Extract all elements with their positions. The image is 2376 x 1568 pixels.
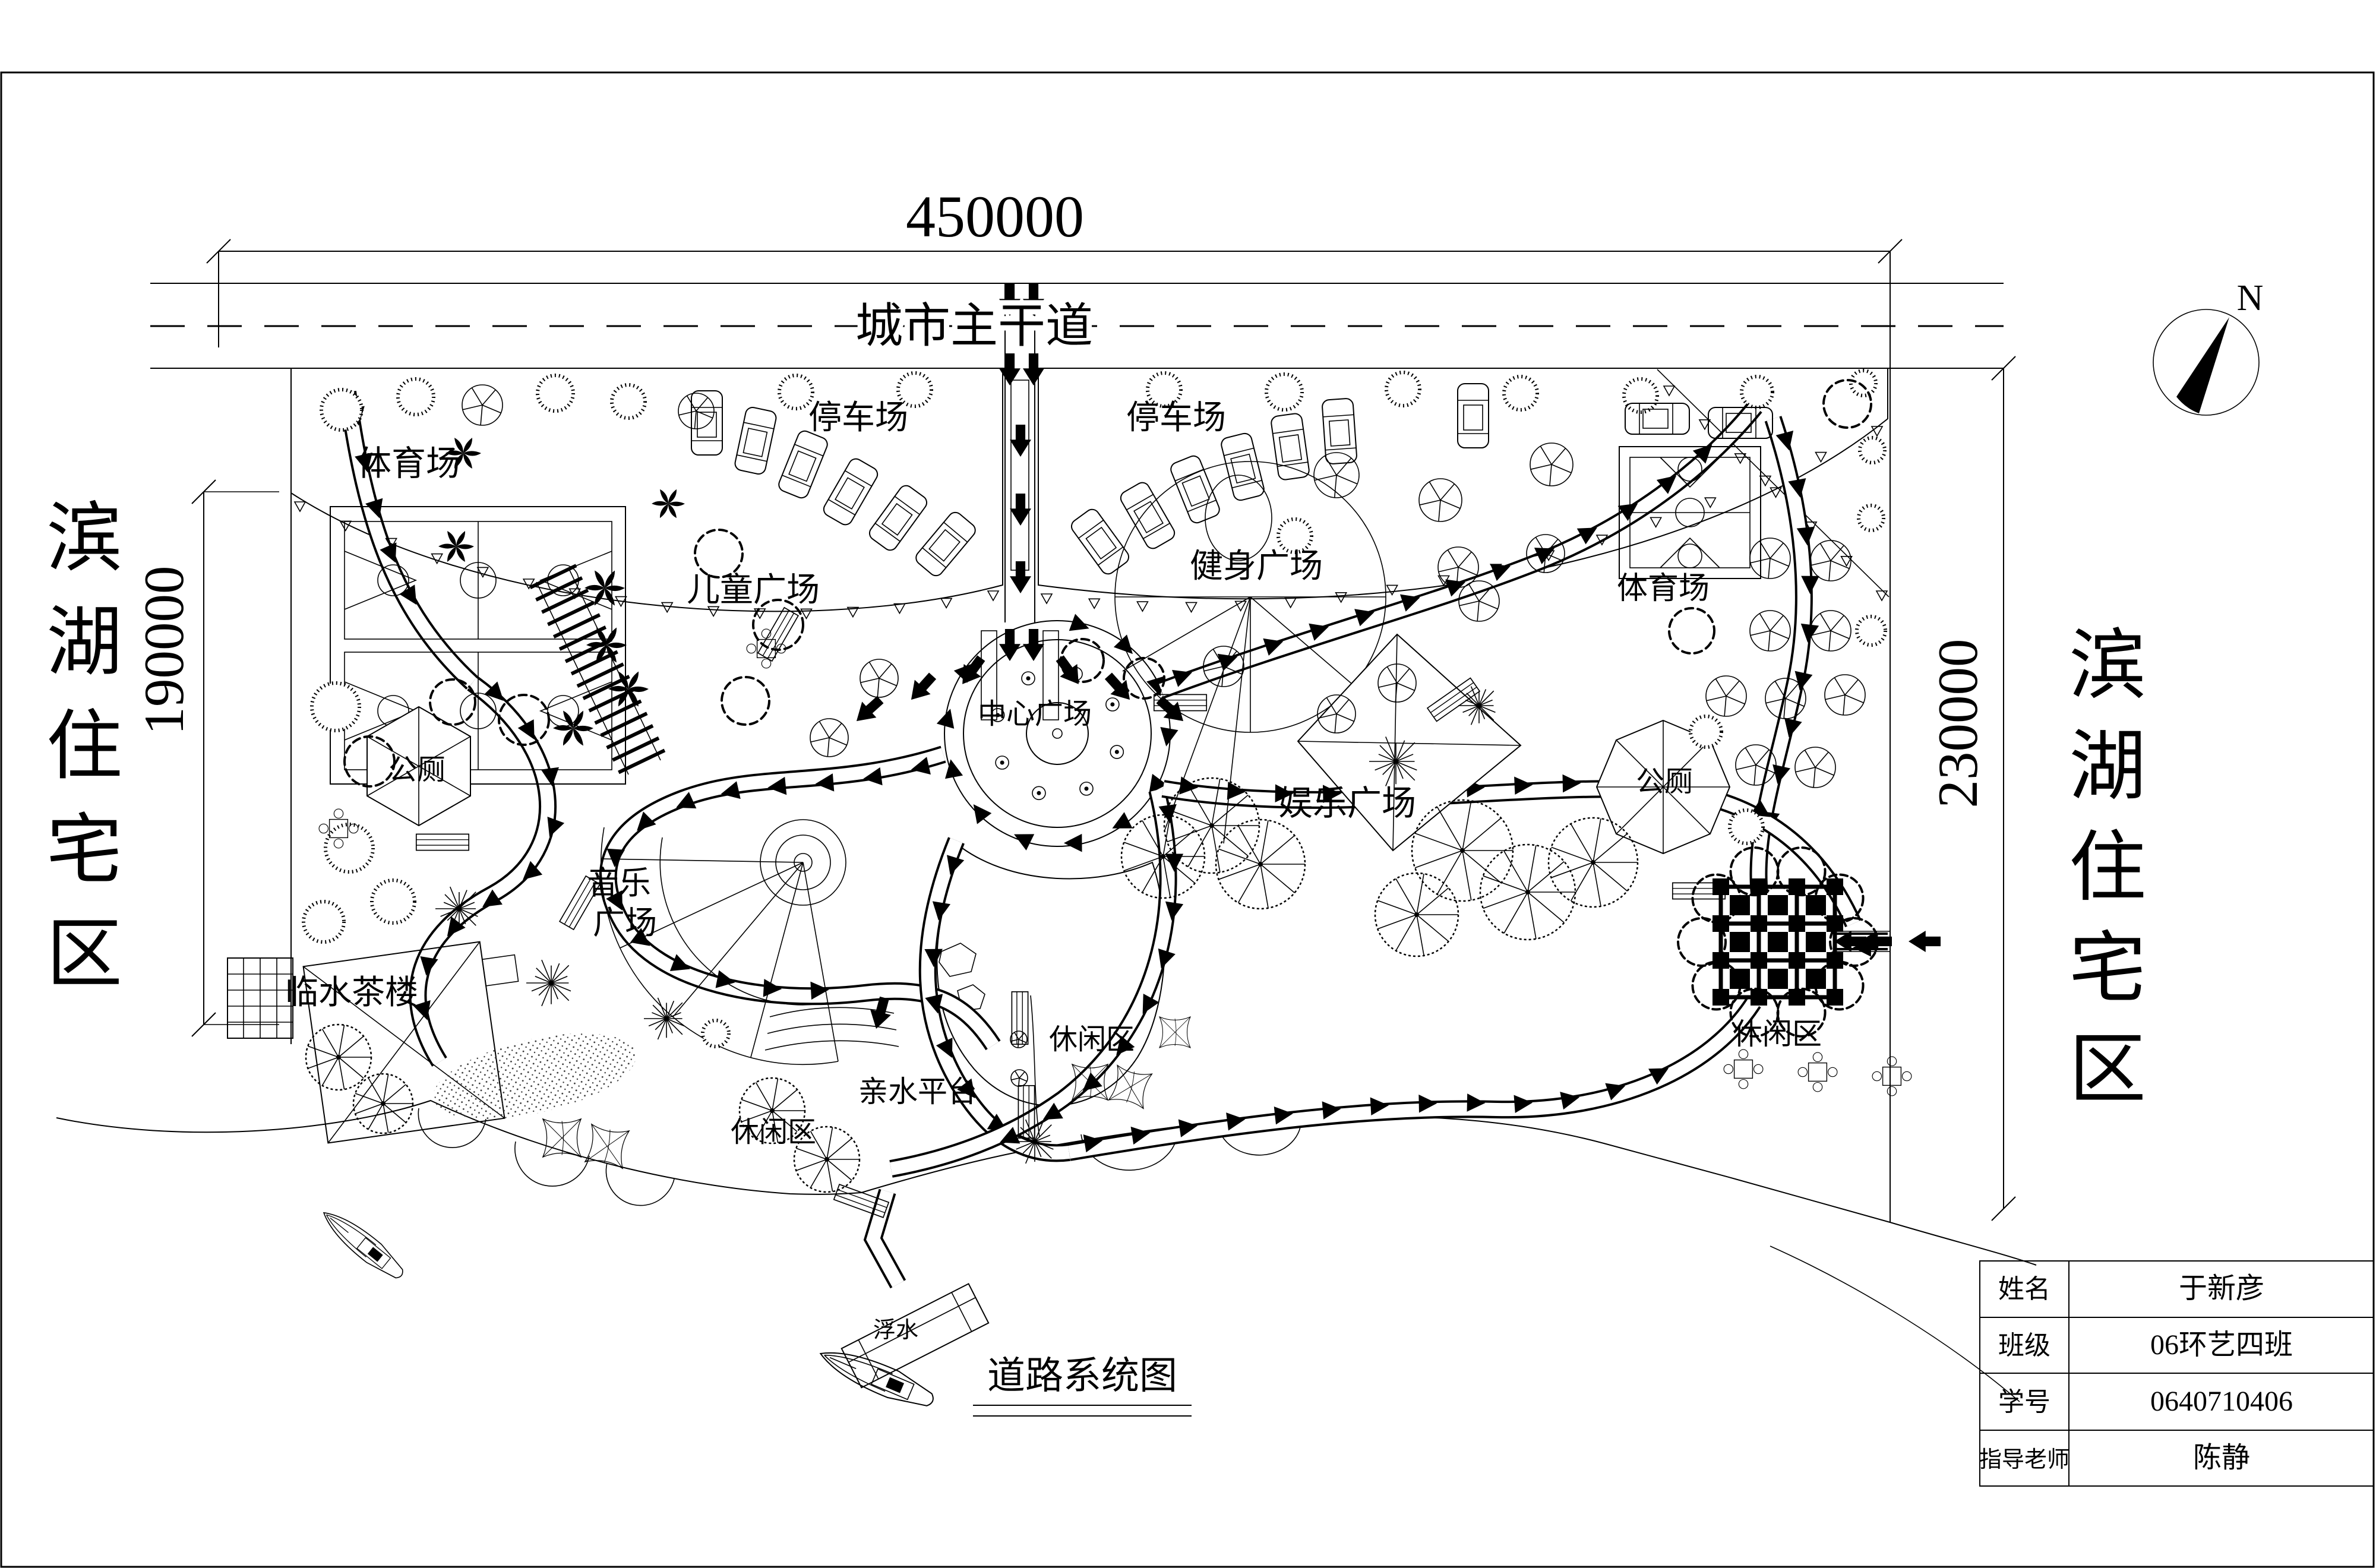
branch	[1770, 615, 1783, 631]
tree-fuzzy	[779, 375, 813, 409]
fringe-triangle	[1336, 593, 1347, 602]
branch	[481, 405, 482, 425]
frond	[1396, 915, 1417, 951]
tree-fuzzy	[1859, 505, 1884, 530]
car-icon	[1458, 384, 1489, 448]
ray	[445, 894, 459, 909]
tree-icon	[1314, 453, 1359, 498]
frond	[796, 1148, 827, 1159]
tree-fuzzy	[1266, 374, 1302, 410]
teahouse-terrace-grid	[228, 958, 293, 1038]
ray	[539, 983, 551, 995]
branch	[1552, 464, 1571, 473]
core	[381, 1101, 386, 1106]
tree-icon	[612, 385, 645, 418]
plaza-dot	[1037, 791, 1041, 795]
tree-icon	[1504, 377, 1537, 410]
label-children-plaza: 儿童广场	[687, 572, 820, 609]
label-toilet-east: 公厕	[1636, 766, 1693, 798]
tree-icon	[1824, 380, 1871, 428]
frond	[1528, 862, 1564, 892]
drawing-title-underline	[973, 1405, 1192, 1416]
tree-fuzzy	[326, 824, 373, 872]
branch	[1440, 484, 1455, 500]
left-neighbor-char: 住	[46, 704, 122, 789]
ray	[653, 1005, 666, 1019]
tree-icon	[652, 489, 685, 518]
frond	[323, 1057, 339, 1086]
tree-icon	[779, 375, 813, 409]
branch	[1429, 482, 1440, 500]
frond	[1238, 864, 1260, 903]
frond	[339, 1057, 364, 1078]
fringe-triangle	[1089, 599, 1099, 608]
ray	[655, 1019, 666, 1030]
tree-icon	[430, 679, 475, 725]
frond	[1504, 851, 1528, 892]
dim-right: 230000	[1926, 639, 1989, 808]
trellis-panel	[1768, 932, 1788, 952]
car-icon	[1271, 413, 1310, 480]
label-floating-dock: 浮水	[873, 1318, 918, 1343]
car-icon	[734, 406, 777, 475]
core	[1525, 890, 1530, 894]
tree-star	[438, 531, 474, 562]
branch	[1477, 601, 1479, 621]
branch	[1770, 631, 1789, 638]
tree-icon	[438, 531, 474, 562]
car-icon	[691, 391, 722, 455]
core	[1209, 823, 1214, 828]
branch	[696, 397, 708, 411]
fringe-triangle	[1705, 498, 1715, 507]
center-plaza: ▶▶▶▶▶▶▶▶▶▶▶▶	[930, 608, 1184, 858]
branch	[694, 411, 696, 429]
branch	[1707, 696, 1726, 701]
frond	[1260, 820, 1268, 864]
trellis-panel	[1806, 932, 1826, 952]
label-parking-west: 停车场	[808, 400, 908, 437]
flow-arrow-icon	[1023, 629, 1044, 661]
tree-icon	[1750, 538, 1790, 578]
tree-icon	[553, 711, 593, 746]
frond	[1219, 864, 1260, 880]
tree-icon	[1480, 845, 1575, 940]
plaza-dot	[1000, 760, 1004, 764]
right-neighbor-char: 宅	[2069, 927, 2146, 1012]
frond	[772, 1079, 778, 1111]
car-icon	[1069, 507, 1132, 577]
branch	[1019, 1071, 1025, 1078]
tree-fuzzy	[1504, 377, 1537, 410]
label-leisure-south: 休闲区	[1049, 1024, 1135, 1055]
frond	[1571, 824, 1593, 862]
frond	[1124, 856, 1163, 871]
tensile-canopy-icon	[543, 1119, 581, 1157]
boat-icon	[815, 1341, 939, 1415]
branch	[482, 405, 501, 413]
frond	[827, 1159, 833, 1191]
core	[336, 1055, 341, 1060]
label-leisure-east: 休闲区	[1733, 1017, 1822, 1051]
branch	[1724, 696, 1726, 716]
tree-icon	[1624, 379, 1657, 412]
fringe-triangle	[1664, 386, 1674, 396]
northeast-edge	[1657, 369, 1889, 597]
core	[1258, 862, 1263, 867]
branch	[1834, 678, 1845, 695]
title-block-label: 班级	[1998, 1331, 2050, 1360]
title-block-label: 指导老师	[1979, 1447, 2069, 1472]
branch	[482, 390, 495, 405]
frond	[383, 1074, 388, 1104]
tree-icon	[1419, 479, 1462, 521]
core	[1460, 848, 1465, 853]
tree-icon	[462, 385, 503, 425]
label-center-plaza: 中心广场	[978, 698, 1092, 730]
fringe-triangle	[1285, 598, 1296, 608]
ray	[666, 1019, 683, 1035]
tree-icon	[538, 375, 573, 411]
site-plan-drawing: ▶▶▶▶▶▶▶▶▶▶▶▶ ▶▶▶▶▶▶▶▶▶▶▶▶▶▶▶▶▶▶▶▶▶▶▶▶▶▶▶…	[0, 0, 2376, 1568]
car-icon	[1220, 432, 1266, 501]
branch	[1015, 1071, 1019, 1078]
branch	[1770, 543, 1783, 558]
dim-top: 450000	[906, 184, 1084, 249]
tensile-canopy-icon	[1159, 1017, 1190, 1048]
branch	[1019, 1078, 1019, 1086]
tree-icon	[1669, 608, 1714, 653]
tree-icon	[1706, 676, 1746, 716]
label-parking-east: 停车场	[1126, 400, 1226, 437]
branch	[1011, 1078, 1019, 1080]
frond	[1417, 915, 1449, 941]
label-music-plaza-1: 音乐	[587, 865, 651, 901]
tree-icon	[1857, 617, 1885, 645]
tree-icon	[398, 379, 434, 415]
label-sports-west: 体育场	[357, 444, 460, 483]
right-neighbor-char: 滨	[2069, 624, 2146, 709]
tree-fuzzy	[1624, 379, 1657, 412]
frond	[1528, 845, 1536, 892]
frond	[1219, 849, 1260, 864]
frond	[1415, 851, 1462, 868]
fringe-triangle	[1876, 591, 1887, 600]
frond	[796, 1159, 827, 1171]
tree-fuzzy	[1691, 716, 1721, 747]
ray	[536, 968, 551, 983]
branch	[1336, 458, 1351, 475]
branch	[1815, 752, 1828, 767]
tree-fuzzy	[321, 390, 362, 430]
frond	[1377, 915, 1417, 929]
branch	[1018, 1039, 1019, 1048]
frond	[1417, 915, 1424, 956]
frond	[1462, 801, 1471, 851]
frond	[383, 1085, 406, 1104]
ray	[551, 965, 569, 983]
tree-icon	[1750, 611, 1790, 651]
branch	[829, 723, 842, 738]
tree-icon	[810, 719, 848, 757]
branch	[1759, 541, 1770, 558]
core	[1414, 912, 1419, 917]
tree-scalloped	[722, 677, 769, 725]
tree-icon	[1549, 818, 1638, 907]
tree-icon	[1386, 372, 1420, 406]
frond	[827, 1127, 833, 1159]
branch	[1815, 767, 1834, 775]
title-block-label: 姓名	[1998, 1275, 2050, 1304]
boat-icon	[317, 1203, 409, 1285]
frond	[1504, 892, 1528, 933]
trellis-panel	[1730, 932, 1750, 952]
tree-star	[652, 489, 685, 518]
tree-fuzzy	[1860, 438, 1885, 463]
tree-icon	[1859, 505, 1884, 530]
branch	[472, 388, 482, 405]
frond	[1415, 833, 1462, 851]
frond	[1124, 842, 1163, 856]
branch	[1813, 767, 1815, 788]
flow-arrow-icon	[1010, 494, 1031, 526]
title-block-value: 陈静	[2193, 1442, 2250, 1474]
branch	[1726, 681, 1739, 696]
frond	[1417, 874, 1424, 915]
tree-fuzzy	[1386, 372, 1420, 406]
branch	[1336, 475, 1357, 484]
branch	[1440, 500, 1460, 508]
car-icon	[913, 510, 978, 578]
branch	[1540, 446, 1552, 464]
left-neighbor-char: 湖	[46, 600, 122, 685]
flow-arrow-icon	[1101, 669, 1138, 707]
trellis-panel	[1768, 895, 1788, 915]
branch	[1825, 695, 1845, 700]
frond	[355, 1104, 383, 1114]
branch	[1759, 614, 1770, 631]
branch	[827, 738, 829, 757]
bench-icon	[416, 834, 469, 850]
branch	[1552, 448, 1566, 464]
branch	[1768, 631, 1770, 651]
frond	[741, 1099, 772, 1111]
frond	[308, 1046, 339, 1057]
frond	[1377, 900, 1417, 915]
fringe-triangle	[1815, 453, 1826, 462]
tree-icon	[1011, 1070, 1028, 1086]
dim-left: 190000	[132, 566, 195, 735]
tree-icon	[304, 902, 344, 942]
frond	[1593, 862, 1627, 891]
north-letter: N	[2237, 278, 2264, 318]
plaza-dot	[1115, 750, 1119, 754]
branch	[879, 678, 896, 685]
label-toilet-west: 公厕	[388, 754, 445, 786]
tree-icon	[860, 659, 898, 697]
tree-fuzzy	[372, 880, 415, 923]
tree-icon	[722, 677, 769, 725]
tree-fuzzy	[538, 375, 573, 411]
branch	[1829, 561, 1831, 581]
main-road-label: 城市主干道	[855, 301, 1093, 353]
right-neighbor-char: 区	[2069, 1028, 2146, 1113]
car-icon	[777, 429, 830, 500]
frond	[1483, 892, 1528, 908]
fringe-triangle	[1760, 476, 1771, 486]
plaza-dot	[1026, 676, 1031, 681]
label-waterfront-platform: 亲水平台	[858, 1075, 977, 1108]
branch	[679, 411, 696, 415]
plaza-dot	[1084, 786, 1088, 791]
flow-arrow-icon	[1023, 353, 1044, 385]
branch	[1531, 464, 1552, 469]
branch	[1845, 679, 1858, 695]
plaza-dot	[1074, 672, 1078, 676]
tree-icon	[1266, 374, 1302, 410]
core	[1591, 860, 1595, 865]
flow-arrow-icon	[903, 669, 941, 707]
title-block-label: 学号	[1998, 1387, 2050, 1417]
tree-fuzzy	[1857, 617, 1885, 645]
left-neighbor-char: 宅	[46, 808, 122, 893]
tree-fuzzy	[304, 902, 344, 942]
tree-fuzzy	[612, 385, 645, 418]
flow-arrow-icon	[1010, 561, 1031, 593]
tree-scalloped	[1824, 380, 1871, 428]
label-teahouse: 临水茶楼	[285, 975, 418, 1011]
drawing-title: 道路系统图	[987, 1355, 1177, 1397]
fringe-triangle	[1137, 602, 1148, 611]
right-neighbor-char: 湖	[2069, 725, 2146, 810]
frond	[1528, 892, 1536, 939]
frond	[1593, 834, 1627, 862]
branch	[1726, 696, 1745, 704]
branch	[1829, 631, 1831, 651]
title-block-value: 0640710406	[2150, 1386, 2293, 1417]
branch	[1715, 679, 1726, 696]
shrub-icon	[1678, 918, 1726, 966]
fringe-triangle	[941, 598, 952, 608]
car-icon	[867, 483, 930, 553]
left-neighbor-char: 滨	[46, 497, 122, 581]
label-music-plaza-2: 广场	[593, 905, 657, 941]
page: ▶▶▶▶▶▶▶▶▶▶▶▶ ▶▶▶▶▶▶▶▶▶▶▶▶▶▶▶▶▶▶▶▶▶▶▶▶▶▶▶…	[0, 0, 2376, 1568]
frond	[1238, 826, 1260, 864]
branch	[1768, 558, 1770, 578]
branch	[1805, 750, 1815, 767]
flow-arrow-icon	[1909, 931, 1941, 952]
core	[770, 1108, 775, 1113]
frond	[811, 1159, 827, 1188]
branch	[1479, 601, 1497, 609]
label-sports-east: 体育场	[1617, 572, 1710, 606]
tree-fuzzy	[312, 683, 359, 731]
path-arrows: ▶▶▶▶▶▶▶▶▶▶▶▶▶	[1082, 1041, 1701, 1155]
branch	[1831, 631, 1849, 638]
frond	[339, 1057, 345, 1089]
fringe-triangle	[662, 603, 672, 612]
branch	[1831, 615, 1844, 631]
branch	[1448, 550, 1458, 567]
branch	[811, 738, 829, 742]
tree-icon	[644, 998, 684, 1039]
tree-icon	[1691, 716, 1721, 747]
branch	[1550, 464, 1552, 486]
frond	[339, 1025, 345, 1057]
path-arrows: ▶▶▶▶▶	[344, 405, 445, 637]
branch	[1019, 1033, 1024, 1039]
frond	[827, 1139, 852, 1159]
branch	[1439, 500, 1440, 521]
frond	[1437, 851, 1462, 894]
frond	[308, 1057, 339, 1068]
tree-icon	[1825, 675, 1865, 715]
tree-icon	[326, 824, 373, 872]
tree-icon	[1795, 747, 1835, 788]
branch	[877, 678, 879, 697]
branch	[1745, 748, 1756, 765]
label-leisure-southwest: 休闲区	[731, 1117, 816, 1148]
tree-star	[553, 711, 593, 746]
north-compass-icon	[2153, 309, 2259, 415]
tree-icon	[1010, 1031, 1027, 1048]
branch	[861, 678, 879, 682]
branch	[1796, 767, 1815, 772]
branch	[1019, 1078, 1027, 1081]
frond	[1462, 818, 1501, 851]
ray	[551, 983, 569, 1001]
branch	[463, 405, 482, 410]
tree-fuzzy	[398, 379, 434, 415]
tree-icon	[703, 1020, 729, 1047]
branch	[1751, 631, 1770, 636]
tree-icon	[1742, 377, 1772, 407]
car-icon	[821, 456, 880, 527]
left-neighbor-char: 区	[46, 912, 122, 997]
tree-fuzzy	[1742, 377, 1772, 407]
branch	[1335, 475, 1336, 498]
fringe-triangle	[1041, 594, 1052, 603]
label-entertainment-plaza: 娱乐广场	[1278, 784, 1416, 823]
frond	[1437, 807, 1462, 851]
tensile-canopy-icon	[585, 1124, 630, 1169]
title-block-value: 06环艺四班	[2150, 1329, 2293, 1361]
frond	[1593, 818, 1601, 862]
frond	[772, 1090, 797, 1111]
tree-fuzzy	[1278, 519, 1312, 552]
frond	[322, 1029, 339, 1057]
branch	[869, 662, 879, 678]
branch	[1831, 561, 1849, 568]
tree-icon	[1216, 820, 1305, 909]
tree-icon	[1278, 519, 1312, 552]
right-neighbor-char: 住	[2069, 826, 2146, 911]
tree-icon	[1375, 873, 1458, 956]
branch	[1754, 765, 1756, 785]
branch	[1736, 765, 1756, 770]
table-chairs-icon	[1724, 1049, 1763, 1089]
ray	[1479, 691, 1494, 706]
label-fitness-plaza: 健身广场	[1190, 548, 1323, 585]
branch	[1775, 681, 1786, 698]
tree-scalloped	[1669, 608, 1714, 653]
frond	[368, 1078, 383, 1104]
flow-arrow-icon	[1010, 425, 1031, 457]
branch	[1459, 601, 1479, 606]
branch	[1770, 558, 1789, 566]
tree-icon	[1851, 371, 1876, 396]
